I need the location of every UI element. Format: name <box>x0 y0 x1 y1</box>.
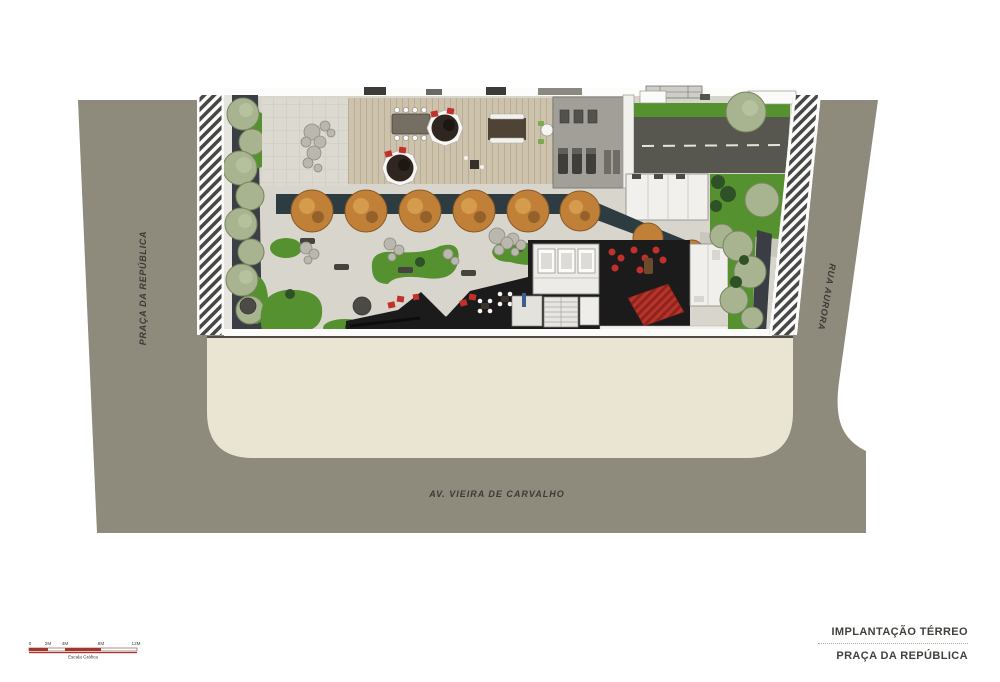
lounge-rug <box>488 114 526 143</box>
scale-bar-graphic: 0 2M 4M 8M 12M Escala Gráfica <box>27 640 145 662</box>
scale-caption: Escala Gráfica <box>68 655 98 660</box>
section-cut-line <box>207 329 793 337</box>
scale-tick-4: 12M <box>132 641 141 646</box>
crosswalk-left <box>197 95 224 335</box>
grid-plaza <box>262 98 348 186</box>
scale-tick-2: 4M <box>62 641 69 646</box>
drawing-subtitle: PRAÇA DA REPÚBLICA <box>748 650 968 662</box>
street-label-av-vieira-de-carvalho: AV. VIEIRA DE CARVALHO <box>429 489 565 499</box>
title-divider <box>818 643 968 644</box>
planter <box>353 297 371 315</box>
deck-terrace <box>348 98 559 186</box>
gym-area <box>553 97 623 188</box>
scale-tick-0: 0 <box>29 641 32 646</box>
lot-surface <box>207 338 793 458</box>
scale-tick-3: 8M <box>98 641 105 646</box>
ground-floor-plan <box>197 86 821 337</box>
scale-tick-1: 2M <box>45 641 52 646</box>
drawing-title: IMPLANTAÇÃO TÉRREO <box>748 626 968 638</box>
street-label-praca-da-republica: PRAÇA DA REPÚBLICA <box>138 231 148 345</box>
scale-bar: 0 2M 4M 8M 12M Escala Gráfica <box>27 640 145 662</box>
title-block: IMPLANTAÇÃO TÉRREO PRAÇA DA REPÚBLICA <box>748 626 968 662</box>
elevator-core <box>533 244 599 294</box>
planter <box>240 298 256 314</box>
site-plan-drawing <box>0 0 1000 682</box>
driveway <box>634 91 796 173</box>
stair-core <box>512 293 599 327</box>
plan-sheet: PRAÇA DA REPÚBLICA RUA AURORA AV. VIEIRA… <box>0 0 1000 682</box>
